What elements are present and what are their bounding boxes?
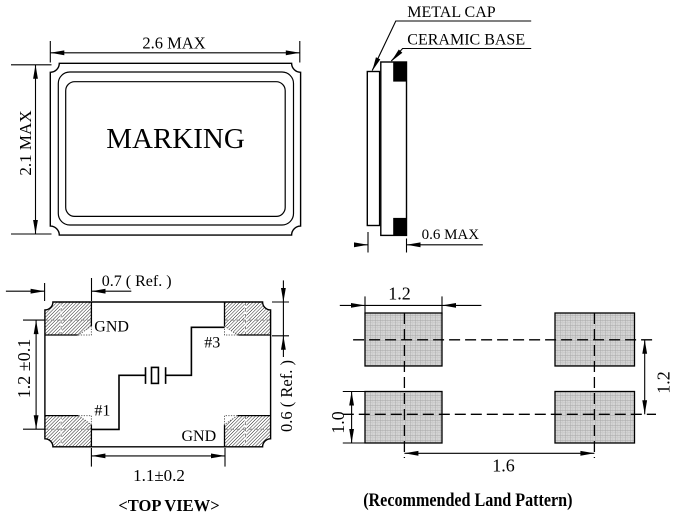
- svg-text:0.6 MAX: 0.6 MAX: [422, 227, 480, 243]
- svg-text:#1: #1: [94, 403, 110, 420]
- svg-text:1.2: 1.2: [654, 371, 674, 394]
- svg-text:2.6 MAX: 2.6 MAX: [142, 34, 205, 53]
- svg-text:CERAMIC BASE: CERAMIC BASE: [407, 32, 525, 49]
- svg-text:0.6 ( Ref. ): 0.6 ( Ref. ): [277, 360, 296, 432]
- svg-text:(Recommended Land Pattern): (Recommended Land Pattern): [363, 490, 572, 511]
- svg-text:GND: GND: [182, 428, 217, 445]
- svg-text:1.0: 1.0: [328, 411, 348, 434]
- svg-text:#3: #3: [204, 335, 220, 352]
- svg-text:GND: GND: [94, 319, 129, 336]
- svg-text:0.7 ( Ref. ): 0.7 ( Ref. ): [102, 273, 172, 290]
- svg-text:<TOP VIEW>: <TOP VIEW>: [118, 496, 219, 515]
- svg-text:1.2 ±0.1: 1.2 ±0.1: [14, 339, 34, 398]
- svg-text:MARKING: MARKING: [106, 123, 245, 155]
- svg-text:1.6: 1.6: [492, 456, 515, 476]
- svg-text:METAL CAP: METAL CAP: [407, 4, 495, 21]
- svg-text:2.1 MAX: 2.1 MAX: [16, 110, 35, 175]
- svg-text:1.1±0.2: 1.1±0.2: [133, 466, 185, 485]
- svg-text:1.2: 1.2: [388, 284, 411, 304]
